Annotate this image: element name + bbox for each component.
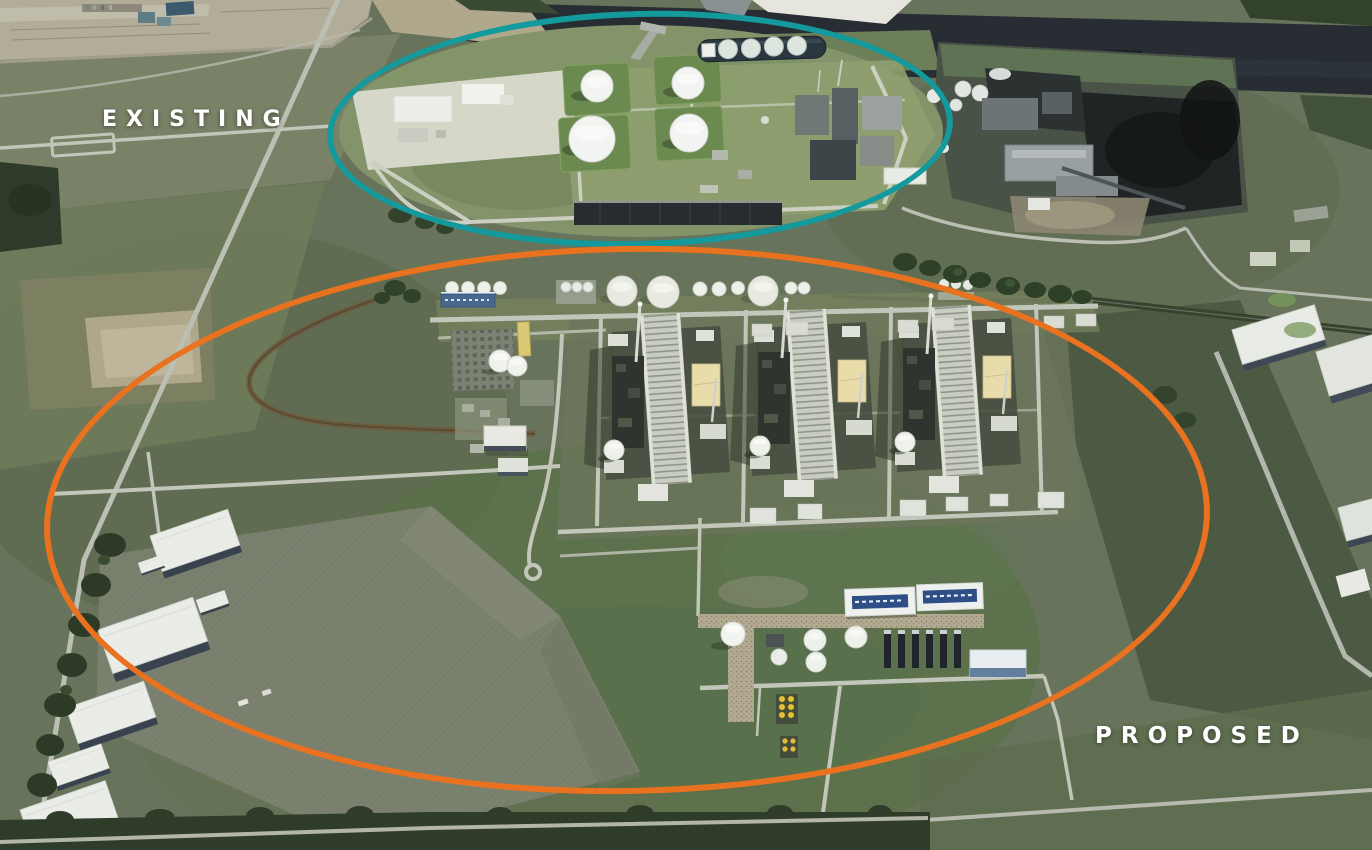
existing-label: EXISTING <box>102 107 290 132</box>
pipe-rack <box>574 201 782 225</box>
yellow-building <box>517 322 531 357</box>
lng-carrier-ship <box>698 35 827 62</box>
pond <box>166 1 195 16</box>
proposed-label: PROPOSED <box>1095 723 1309 749</box>
aerial-site-view: EXISTING PROPOSED <box>0 0 1372 850</box>
